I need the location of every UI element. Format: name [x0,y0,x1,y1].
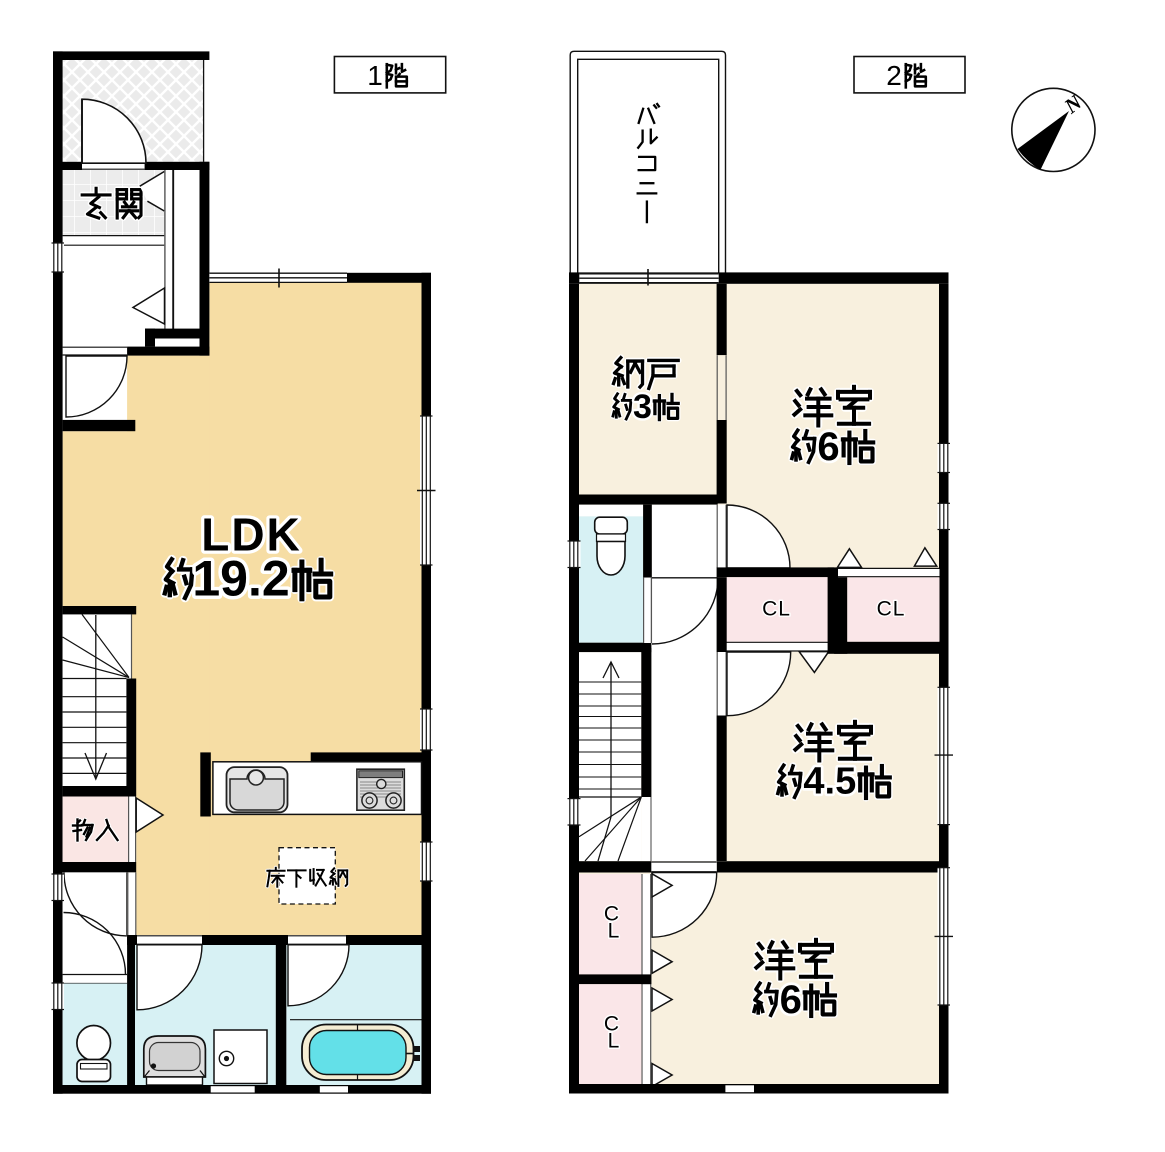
svg-text:6: 6 [780,978,802,1022]
svg-text:L: L [608,920,620,943]
svg-text:4.5: 4.5 [803,761,856,803]
svg-text:L: L [608,1030,620,1053]
svg-text:6: 6 [817,425,839,469]
svg-text:19.2: 19.2 [192,551,289,607]
svg-text:1: 1 [367,60,383,91]
svg-text:3: 3 [633,388,652,426]
svg-text:CL: CL [762,598,791,621]
svg-text:CL: CL [877,598,906,621]
svg-text:2: 2 [886,60,902,91]
